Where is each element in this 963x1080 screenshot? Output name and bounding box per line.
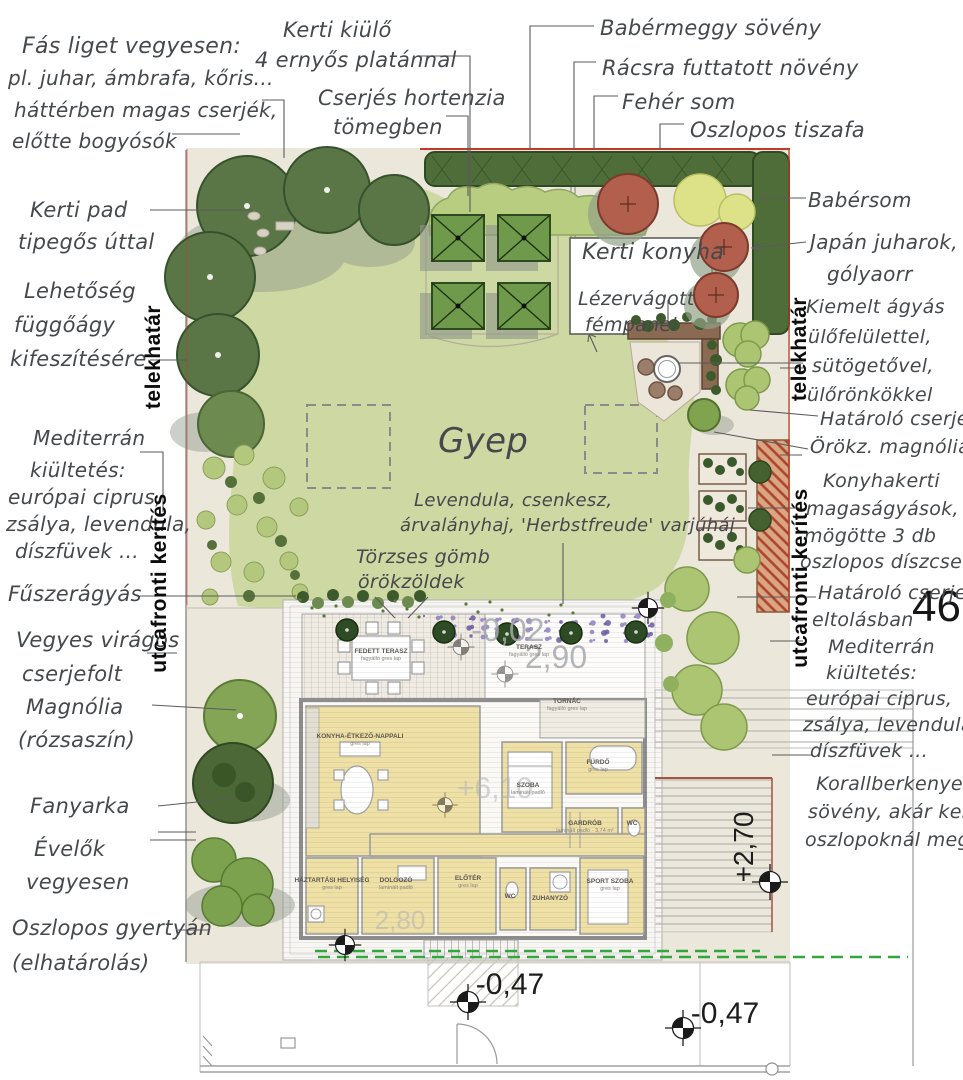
garden-plan-page: 46 Fás liget vegyesen:pl. juhar, ámbrafa…: [0, 0, 963, 1080]
kitchen-garden-beds: [699, 454, 746, 560]
garden-plan-drawing: [0, 0, 963, 1080]
